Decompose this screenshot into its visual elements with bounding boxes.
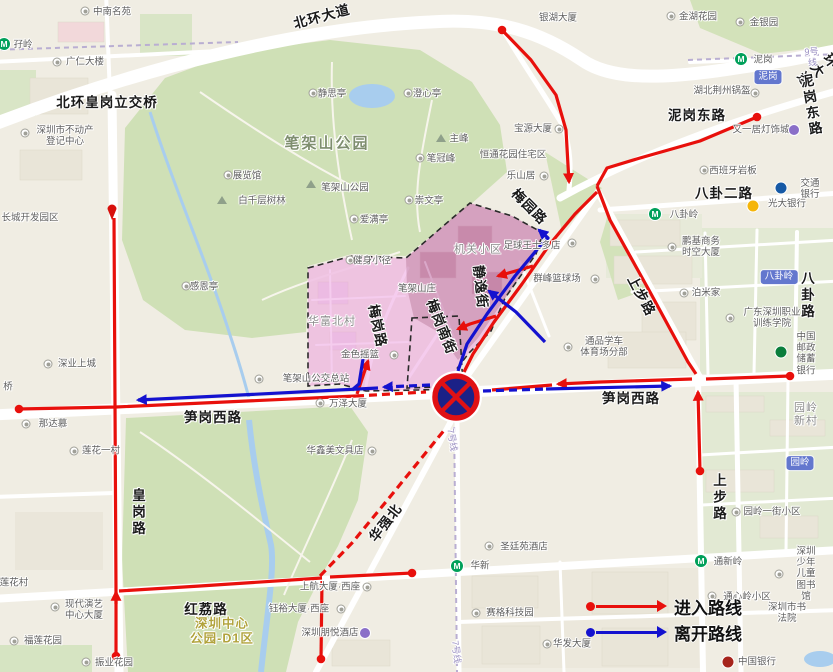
green-area [140, 14, 192, 56]
enter-route-line-start-dot [498, 26, 507, 35]
legend-leave-arrow-icon [596, 631, 658, 634]
water-body [349, 84, 395, 108]
metro-line [0, 42, 238, 50]
enter-route-line-start-dot [15, 405, 24, 414]
enter-route-line [698, 392, 700, 471]
enter-route-line [597, 117, 757, 186]
legend-leave-dot-icon [586, 628, 595, 637]
map-canvas[interactable]: 北环皇岗立交桥泥岗东路八卦二路笋岗西路笋岗西路红荔路皇岗路八卦路上步路上步路华强… [0, 0, 833, 672]
green-area [15, 512, 103, 570]
map-legend: 进入路线 离开路线 [586, 593, 826, 645]
green-area [700, 228, 833, 374]
legend-enter-label: 进入路线 [674, 594, 742, 619]
map-graphics [0, 0, 833, 672]
green-area [0, 645, 92, 672]
building-block [58, 22, 104, 42]
building-block [472, 576, 538, 608]
no-stopping-sign-icon [430, 371, 482, 423]
legend-enter-route: 进入路线 [586, 593, 826, 619]
road [457, 415, 459, 672]
road [795, 232, 797, 374]
green-area [690, 0, 833, 54]
legend-enter-dot-icon [586, 602, 595, 611]
road [600, 193, 833, 210]
legend-leave-label: 离开路线 [674, 620, 742, 645]
enter-route-line-start-dot [786, 372, 795, 381]
enter-route-line-start-dot [753, 113, 762, 122]
building-block [760, 516, 818, 538]
enter-route-line-start-dot [408, 569, 417, 578]
building-block [614, 256, 692, 284]
building-block [482, 626, 540, 664]
legend-enter-arrow-icon [596, 605, 658, 608]
road [0, 493, 114, 497]
enter-route-line-end-dot [112, 652, 121, 661]
building-block [332, 640, 390, 666]
water-body [804, 651, 833, 667]
enter-route-line-start-dot [696, 467, 705, 476]
road [786, 378, 788, 552]
legend-leave-route: 离开路线 [586, 619, 826, 645]
building-block [20, 150, 82, 180]
building-block [770, 420, 825, 436]
enter-route-line [321, 581, 322, 659]
enter-route-line-start-dot [317, 655, 326, 664]
